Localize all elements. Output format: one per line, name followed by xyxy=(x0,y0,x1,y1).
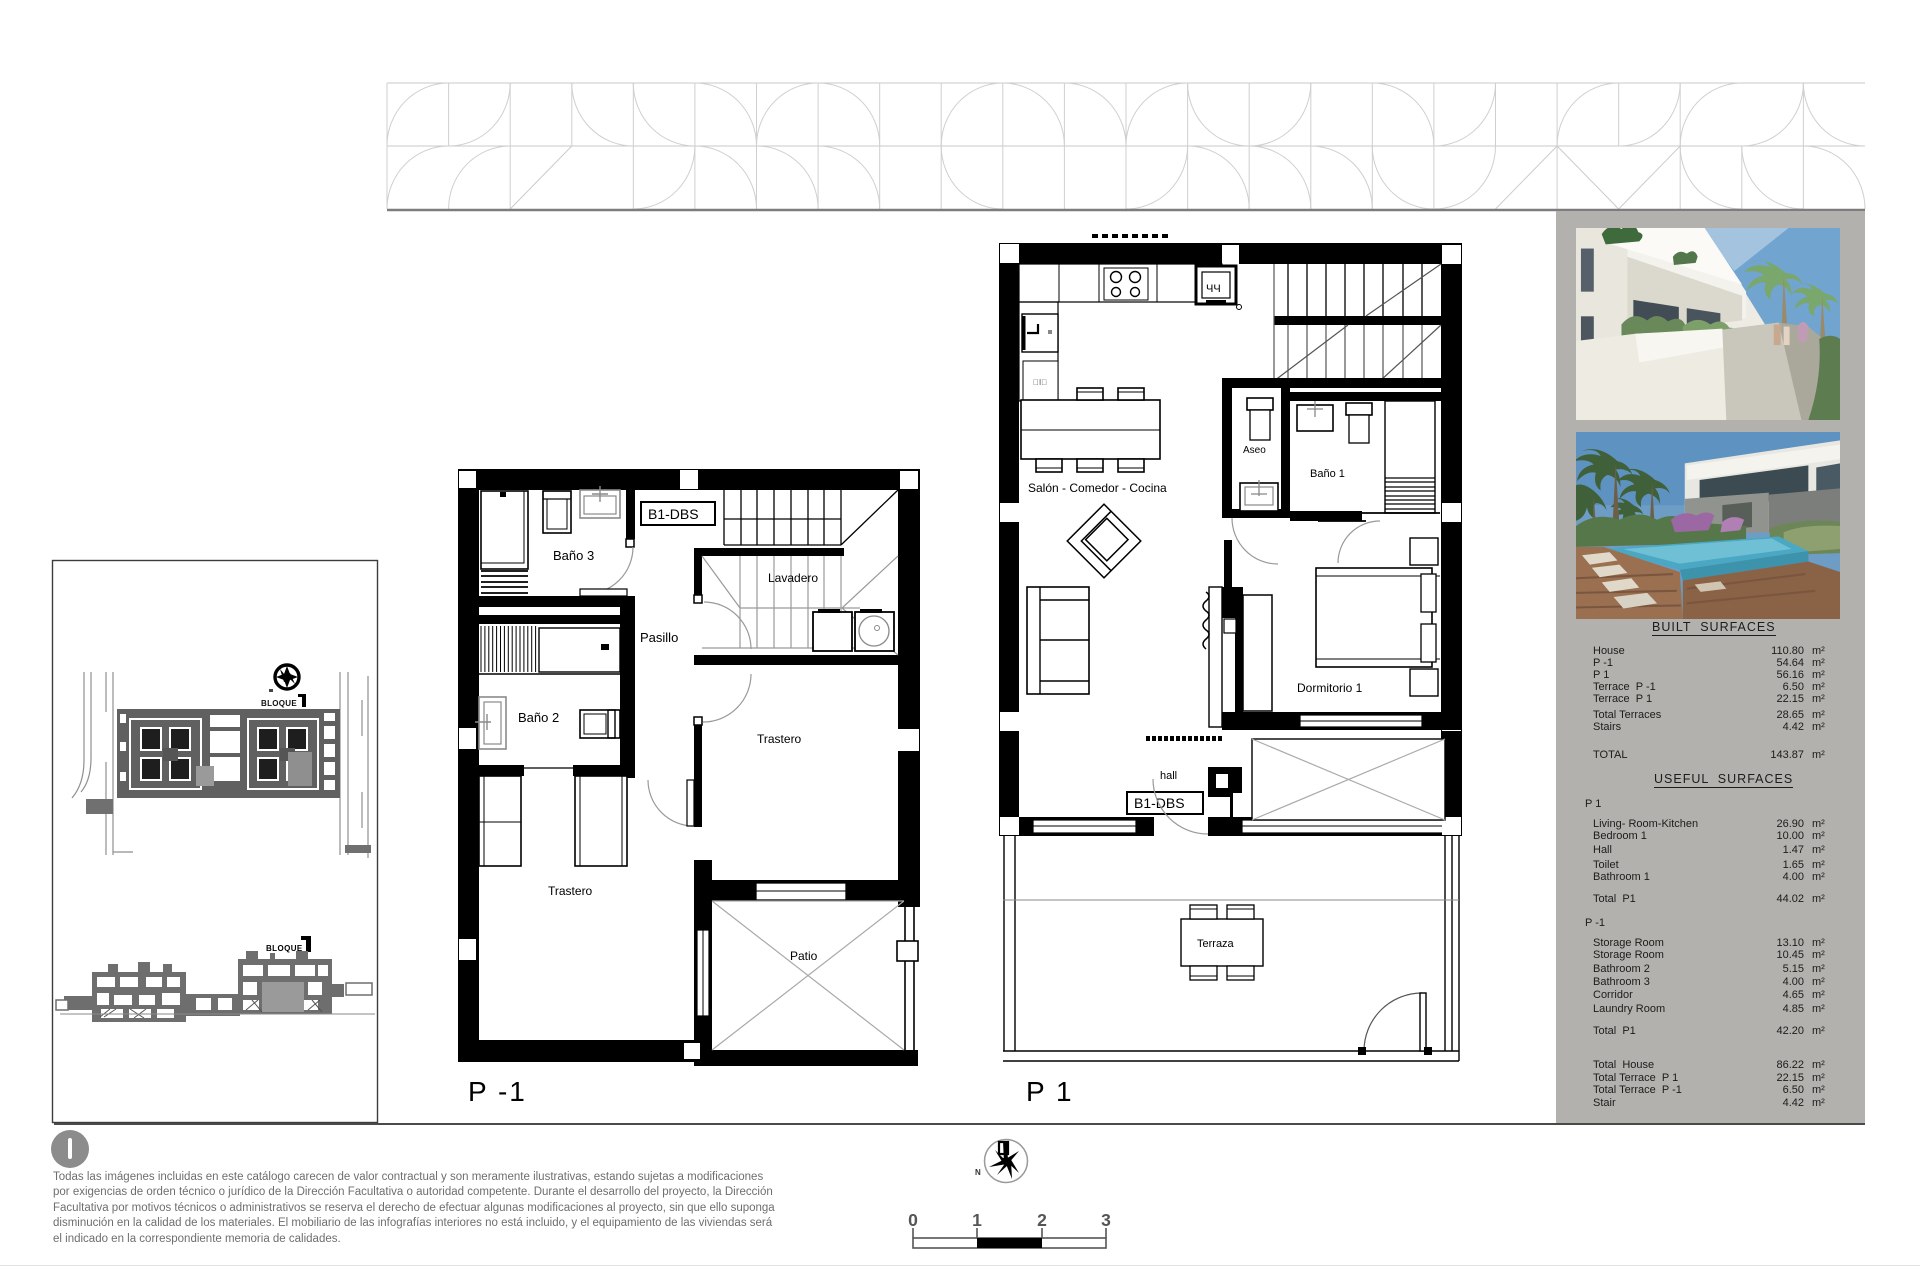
svg-text:ЧЧ: ЧЧ xyxy=(1206,283,1221,295)
svg-text:Dormitorio 1: Dormitorio 1 xyxy=(1297,681,1363,695)
svg-text:Terraza: Terraza xyxy=(1197,938,1235,950)
svg-text:0: 0 xyxy=(908,1210,918,1230)
svg-text:᷍I᷍: ᷍I᷍ xyxy=(1033,378,1047,387)
svg-text:Salón - Comedor - Cocina: Salón - Comedor - Cocina xyxy=(1028,481,1167,495)
svg-text:B1-DBS: B1-DBS xyxy=(1134,795,1185,811)
svg-text:2: 2 xyxy=(1037,1210,1047,1230)
svg-text:Baño 1: Baño 1 xyxy=(1310,468,1345,480)
svg-text:Aseo: Aseo xyxy=(1243,445,1266,456)
svg-text:hall: hall xyxy=(1160,770,1177,782)
svg-text:P 1: P 1 xyxy=(1026,1076,1074,1107)
svg-text:3: 3 xyxy=(1101,1210,1111,1230)
svg-text:1: 1 xyxy=(972,1210,982,1230)
